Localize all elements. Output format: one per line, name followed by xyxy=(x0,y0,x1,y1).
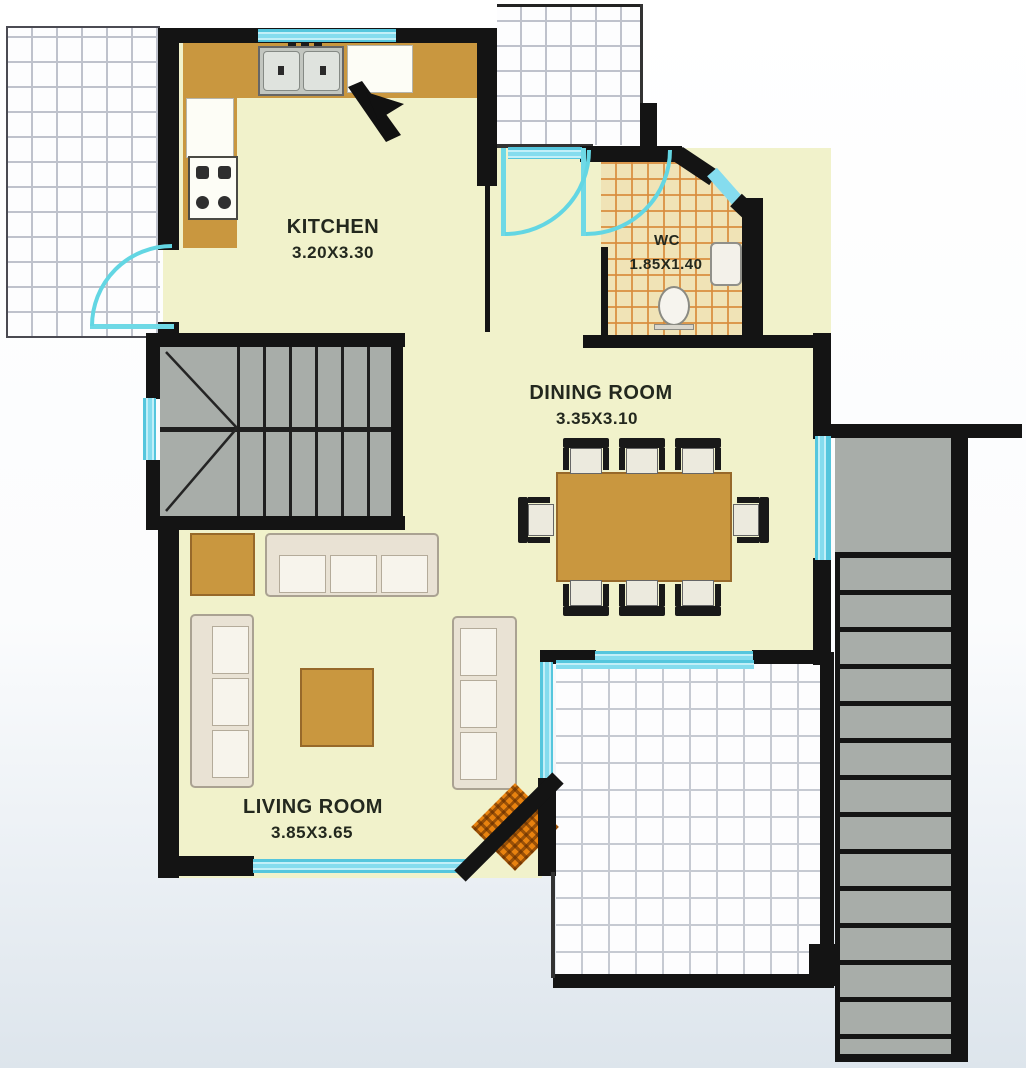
kitchen-door-arc xyxy=(92,246,172,326)
dining-room-label: DINING ROOM xyxy=(529,382,672,405)
kitchen-dims: 3.20X3.30 xyxy=(292,243,374,263)
dining-room-dims: 3.35X3.10 xyxy=(556,409,638,429)
wc-door-arc xyxy=(586,150,670,234)
living-room-label: LIVING ROOM xyxy=(243,796,383,819)
stair-direction-line xyxy=(166,428,237,511)
floor-plan: KITCHEN 3.20X3.30 WC 1.85X1.40 DINING RO… xyxy=(0,0,1026,1068)
kitchen-label: KITCHEN xyxy=(287,216,379,239)
stair-direction-line xyxy=(166,352,237,428)
plan-overlay xyxy=(0,0,1026,1068)
fireplace-diagonal-wall xyxy=(460,778,558,876)
living-room-dims: 3.85X3.65 xyxy=(271,823,353,843)
wc-label: WC xyxy=(654,232,680,249)
wc-angled-wall xyxy=(736,200,753,216)
wc-dims: 1.85X1.40 xyxy=(630,256,703,273)
wc-angled-wall xyxy=(678,154,714,178)
entry-door-arc xyxy=(505,150,589,234)
